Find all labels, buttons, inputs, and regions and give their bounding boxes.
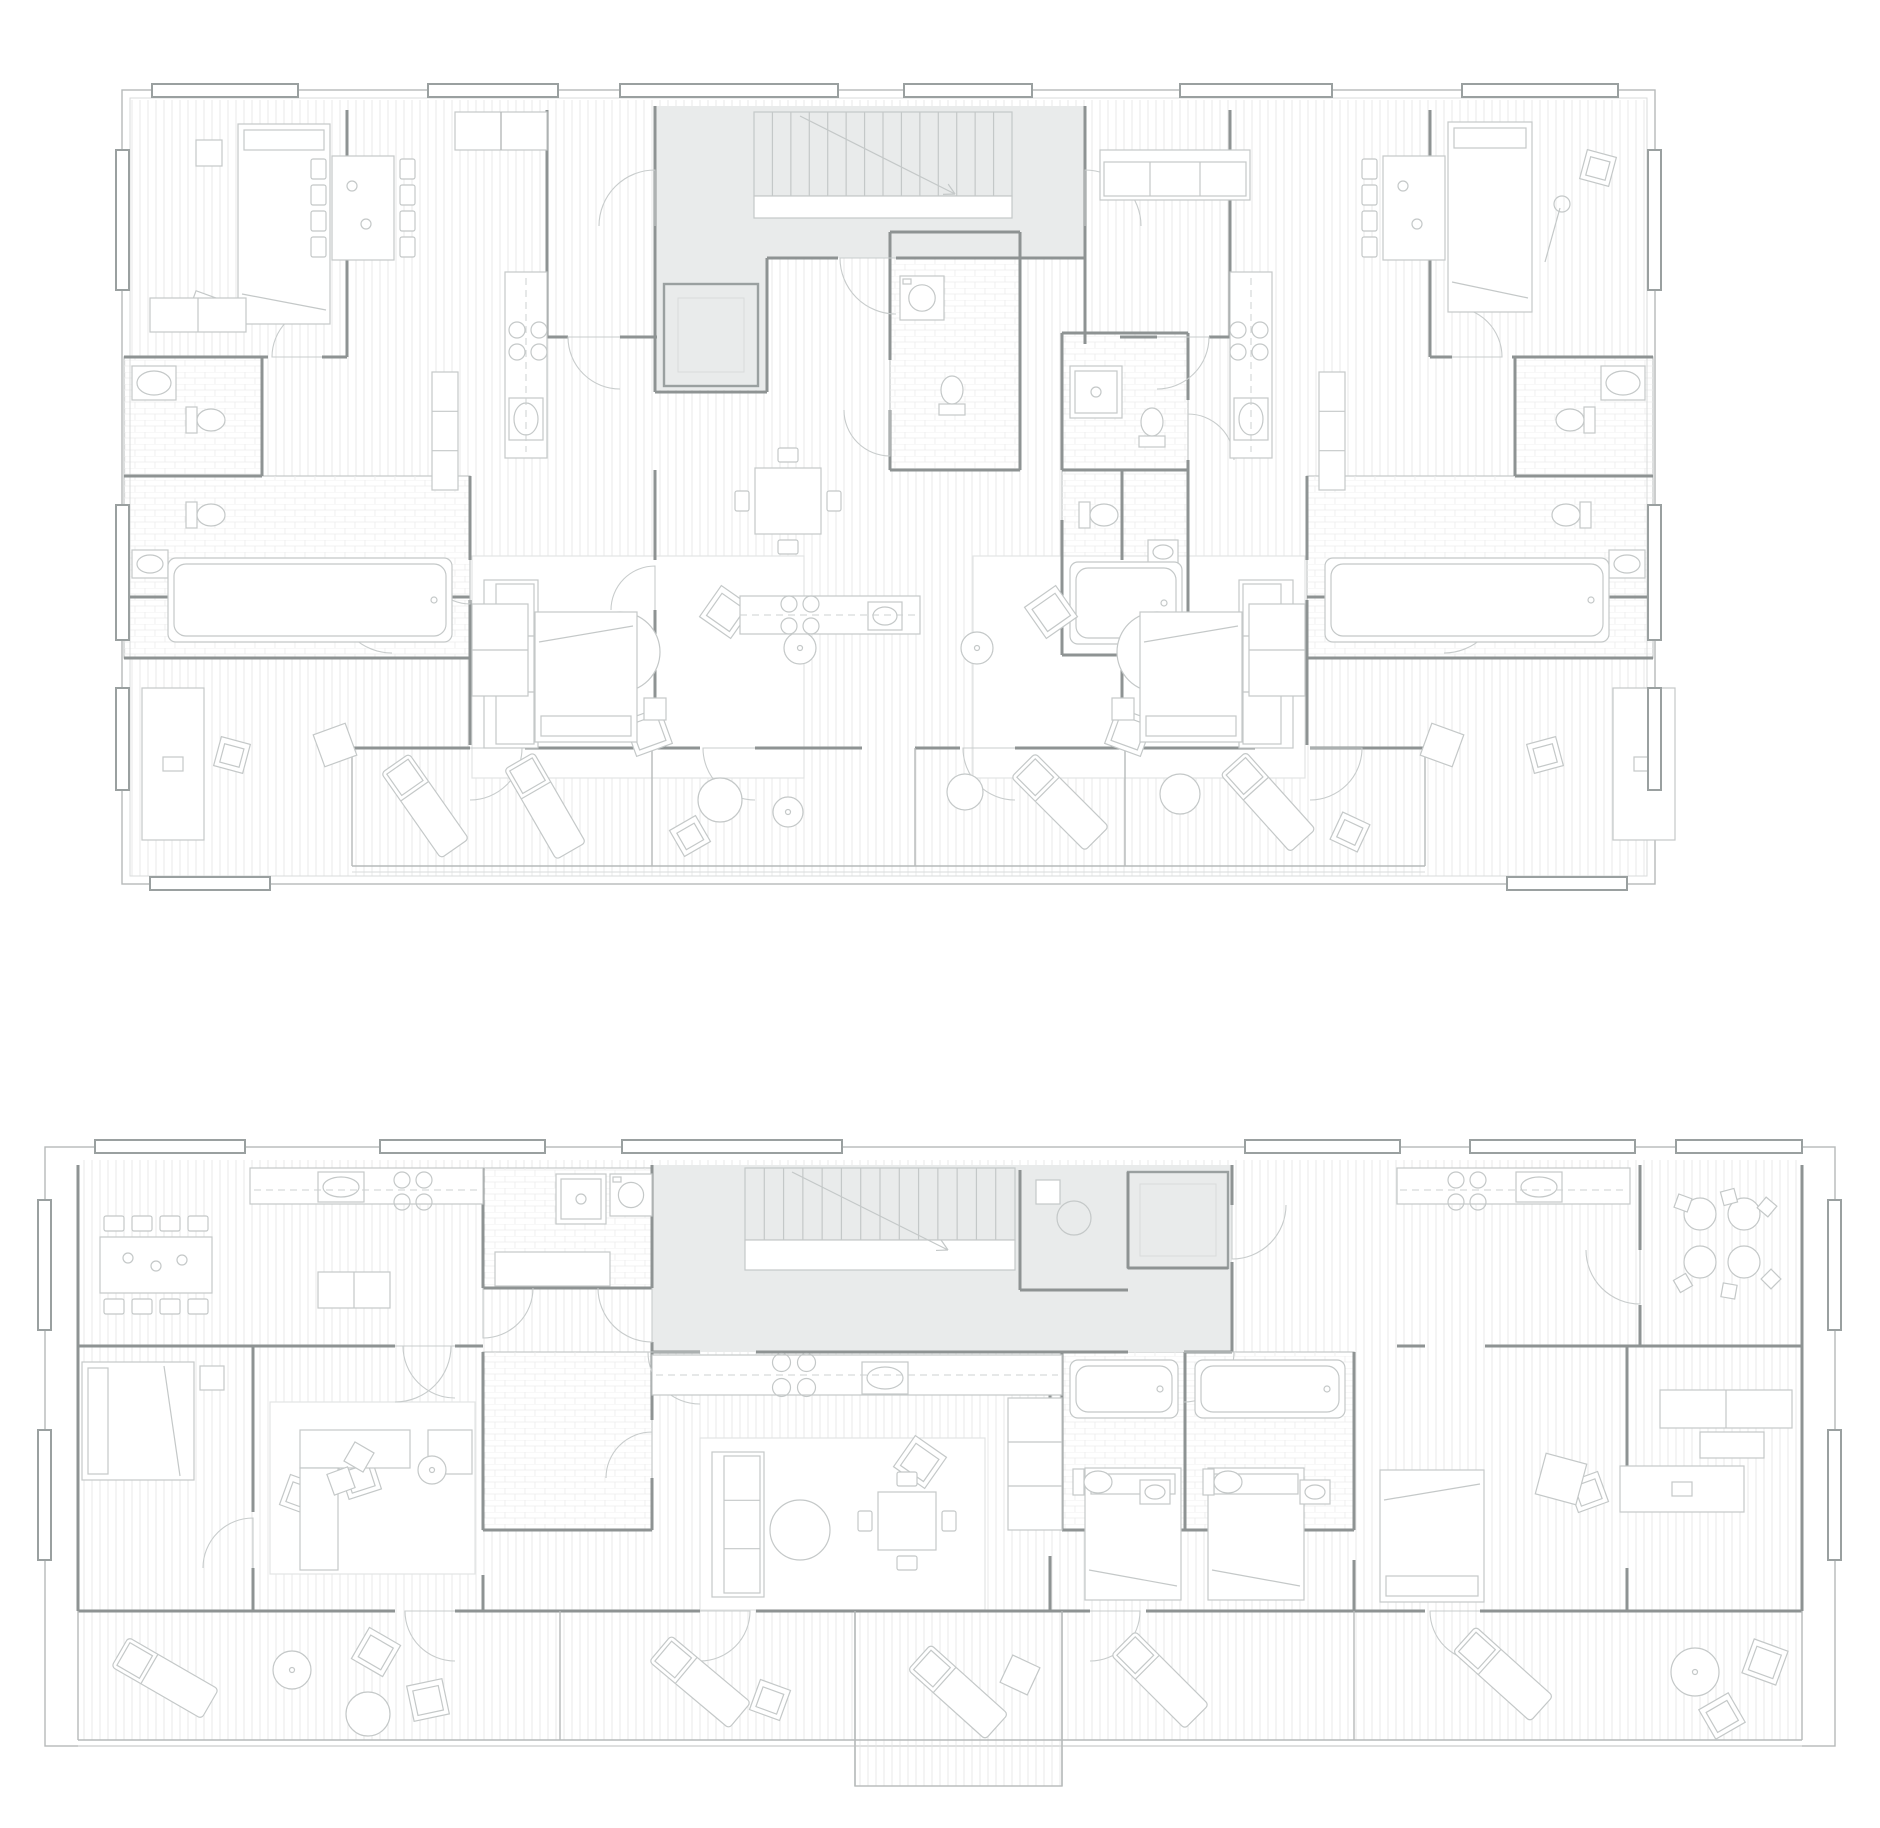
bed [1448,122,1532,312]
window-lintel [1648,505,1661,640]
furniture-rect [644,698,666,720]
round-table [947,774,983,810]
tile-floor [890,232,1020,470]
window-lintel [152,84,298,97]
round-table [346,1692,390,1736]
round-table [1671,1648,1719,1696]
furniture-rect [200,1366,224,1390]
round-table [1728,1246,1760,1278]
shower [1070,366,1122,418]
attic-floor-plan [38,1140,1841,1786]
round-table [1684,1246,1716,1278]
window-lintel [1648,150,1661,290]
window-lintel [150,877,270,890]
desk [1613,688,1675,840]
floor-plan-canvas [0,0,1880,1828]
bed [1380,1470,1484,1602]
window-lintel [620,84,838,97]
cabinet [432,372,458,490]
toilet [939,376,965,415]
toilet [1079,502,1118,528]
furniture-rect [1700,1432,1764,1458]
round-table [773,797,803,827]
sofa [1100,150,1250,200]
bed [535,612,637,742]
window-lintel [116,505,129,640]
cabinet [1008,1398,1062,1530]
shower [556,1174,606,1224]
toilet [1139,408,1165,447]
sink [1148,540,1178,564]
window-lintel [1648,688,1661,790]
floor-plan-figure [0,0,1880,1828]
cabinet [1660,1390,1792,1428]
cabinet [318,1272,390,1308]
sink [1516,1172,1562,1202]
round-table [418,1456,446,1484]
washing-machine [610,1174,652,1216]
window-lintel [1676,1140,1802,1153]
window-lintel [1828,1430,1841,1560]
furniture-rect [1397,1168,1630,1204]
window-lintel [116,688,129,790]
sink [1609,550,1645,578]
window-lintel [116,150,129,290]
elevator-shaft [1128,1172,1228,1268]
washing-machine [900,276,944,320]
round-table [273,1651,311,1689]
window-lintel [1507,877,1627,890]
cabinet [1319,372,1345,490]
window-lintel [622,1140,842,1153]
round-table [961,632,993,664]
bathtub [168,558,452,642]
round-table [770,1500,830,1560]
tile-floor [483,1352,652,1530]
sink [132,550,168,578]
bathtub [1195,1360,1345,1418]
furniture-rect [652,1355,1062,1395]
furniture-rect [196,140,222,166]
toilet [1556,407,1595,433]
upper-floor-plan [116,84,1675,890]
round-table [784,632,816,664]
window-lintel [428,84,558,97]
window-lintel [95,1140,245,1153]
window-lintel [1828,1200,1841,1330]
round-table [698,778,742,822]
furniture-rect [1112,698,1134,720]
desk [142,688,204,840]
toilet [1203,1469,1242,1495]
bed [82,1362,194,1480]
bathtub [1070,1360,1178,1418]
window-lintel [904,84,1032,97]
bathtub [1325,558,1609,642]
sink [132,366,176,400]
window-lintel [38,1200,51,1330]
window-lintel [1462,84,1618,97]
armchair [407,1679,450,1722]
window-lintel [380,1140,545,1153]
sofa [712,1452,764,1597]
round-table [1160,774,1200,814]
furniture-rect [250,1168,483,1204]
toilet [186,407,225,433]
furniture-rect [1721,1283,1737,1299]
sink [318,1172,364,1202]
bed [1140,612,1242,742]
sink [868,602,902,630]
sink [1601,366,1645,400]
sink [862,1362,908,1394]
window-lintel [1245,1140,1400,1153]
window-lintel [38,1430,51,1560]
sink [1140,1480,1170,1504]
sink [1300,1480,1330,1504]
furniture-rect [1036,1180,1060,1204]
toilet [1552,502,1591,528]
furniture-rect [1720,1188,1737,1205]
cabinet [1249,604,1305,696]
cabinet [150,298,246,332]
toilet [1073,1469,1112,1495]
cabinet [472,604,528,696]
window-lintel [1470,1140,1635,1153]
desk [1620,1466,1744,1512]
toilet [186,502,225,528]
window-lintel [1180,84,1332,97]
furniture-rect [495,1252,610,1286]
